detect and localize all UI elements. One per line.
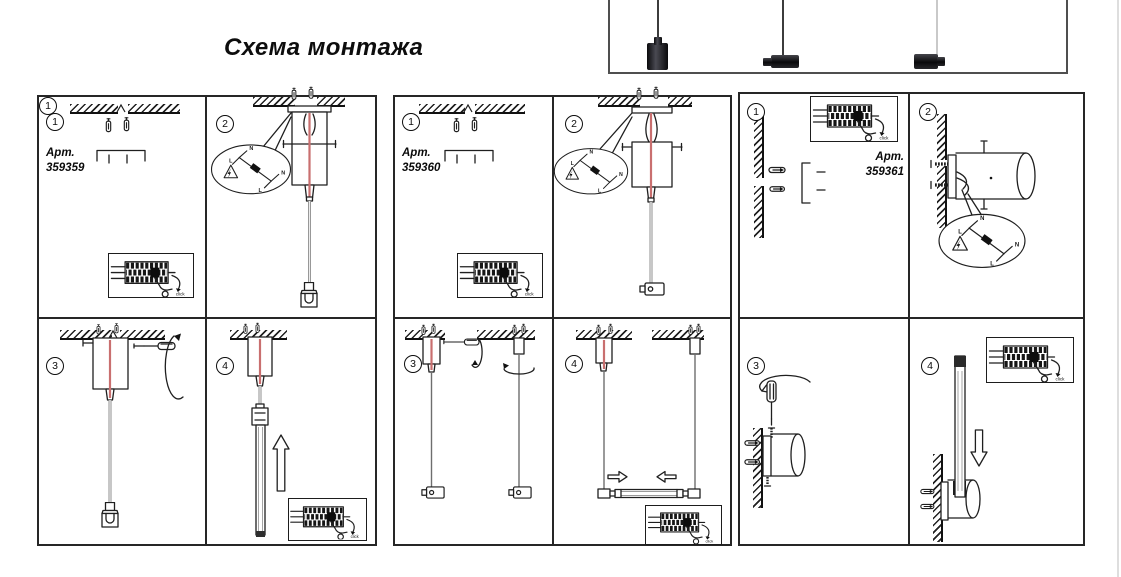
article-number: 359359: [46, 161, 84, 176]
pendant-cord-2: [782, 0, 784, 57]
step-badge: 3: [747, 357, 765, 375]
article-word: Арт.: [402, 146, 440, 161]
cable-lock-inset: click: [288, 498, 367, 541]
article-word: Арт.: [858, 150, 904, 165]
step-badge: 2: [919, 103, 937, 121]
click-label: click: [525, 292, 534, 297]
illustration-wiring: N L N L: [910, 94, 1085, 317]
article-word: Арт.: [46, 146, 84, 161]
step-2-cell: 2 N L N L: [207, 97, 376, 317]
click-label: click: [706, 539, 714, 544]
step-4-cell: 4 click: [207, 319, 376, 546]
step-4-cell: 4 click: [910, 319, 1085, 545]
step-badge: 3: [404, 355, 422, 373]
step-badge: 4: [565, 355, 583, 373]
step-badge: 1: [402, 113, 420, 131]
cable-lock-inset: click: [986, 337, 1074, 383]
pendant-lamp-horizontal-right: [914, 54, 938, 69]
step-badge: 2: [565, 115, 583, 133]
click-label: click: [880, 136, 890, 141]
article-number: 359361: [858, 165, 904, 180]
svg-text:N: N: [589, 149, 593, 155]
step-3-cell: 3: [39, 319, 205, 546]
step-3-cell: 3: [395, 319, 552, 546]
step-2-cell: 2 N L N L: [910, 94, 1085, 317]
page-edge-line: [1117, 0, 1119, 577]
step-2-cell: 2 N L N L: [554, 97, 730, 317]
step-1-cell: 1 click Арт. 359361: [740, 94, 908, 317]
svg-text:N: N: [619, 172, 623, 178]
cable-lock-inset: click: [457, 253, 543, 298]
illustration-fasten-canopy: [39, 319, 205, 546]
illustration-fasten-body: [740, 319, 908, 545]
svg-text:N: N: [281, 170, 285, 176]
step-badge: 4: [921, 357, 939, 375]
svg-text:L: L: [958, 230, 962, 236]
illustration-fasten-adjust: [395, 319, 552, 546]
svg-text:N: N: [1015, 242, 1019, 248]
pendant-cord-3: [936, 0, 938, 56]
article-label: Арт. 359361: [858, 150, 904, 180]
illustration-wiring: N L N L: [207, 97, 376, 317]
cable-lock-inset: click: [108, 253, 194, 298]
cable-lock-inset: click: [645, 505, 722, 545]
step-badge: 1: [747, 103, 765, 121]
step-3-cell: 3: [740, 319, 908, 545]
click-label: click: [351, 534, 360, 539]
step-badge: 2: [216, 115, 234, 133]
pendant-lamp-vertical: [647, 43, 668, 70]
step-1-cell: 1 Арт. 359360 click: [395, 97, 552, 317]
article-label: Арт. 359360: [402, 146, 440, 176]
step-1-cell: 1 Арт. 359359 click 1: [39, 97, 205, 317]
svg-text:L: L: [598, 188, 601, 194]
step-badge: 4: [216, 357, 234, 375]
article-label: Арт. 359359: [46, 146, 84, 176]
pendant-lamp-horizontal-left: [771, 55, 799, 68]
pendant-lamp-horizontal-right-nose: [937, 57, 945, 66]
click-label: click: [176, 292, 185, 297]
svg-text:N: N: [980, 216, 984, 222]
panel-359360: 1 Арт. 359360 click 2: [393, 95, 732, 546]
panel-359361: 1 click Арт. 359361 2: [738, 92, 1085, 546]
product-preview-box: [608, 0, 1068, 74]
step-badge: 3: [46, 357, 64, 375]
pendant-lamp-horizontal-left-nose: [763, 58, 772, 66]
pendant-lamp-vertical-cap: [654, 37, 662, 45]
svg-text:N: N: [249, 146, 253, 152]
page-title: Схема монтажа: [224, 34, 423, 62]
article-number: 359360: [402, 161, 440, 176]
panel-359359: 1 Арт. 359359 click 1 2: [37, 95, 377, 546]
svg-text:L: L: [571, 161, 574, 167]
click-label: click: [1056, 377, 1066, 382]
svg-text:L: L: [990, 262, 994, 268]
cable-lock-inset: click: [810, 96, 898, 142]
step-4-cell: 4 click: [554, 319, 730, 546]
